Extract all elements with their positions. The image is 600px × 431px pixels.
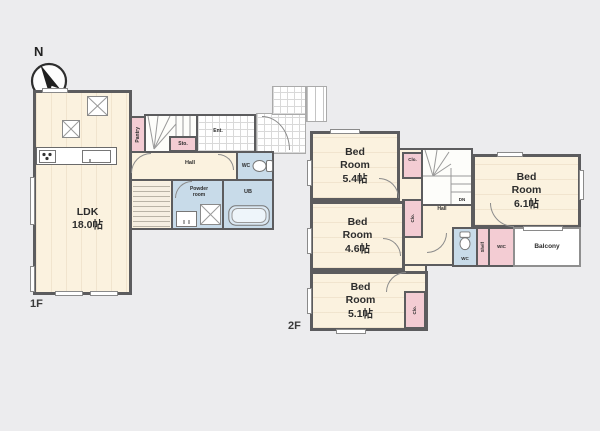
balcony: Balcony [513,227,581,267]
room-wic: WIC [488,227,515,267]
label-wc-2f: WC [456,256,474,262]
label-ldk: LDK 18.0帖 [45,206,130,232]
label-bedroom-54: Bed Room 5.4帖 [340,146,370,185]
bathtub-icon [228,205,270,226]
label-bedroom-61: Bed Room 6.1帖 [512,171,542,210]
label-wic: WIC [497,244,506,250]
closet-b: Clo. [402,199,423,238]
label-closet-a: Clo. [404,157,421,163]
label-balcony: Balcony [534,243,559,251]
room-ldk [33,90,132,295]
window [30,266,35,292]
stove-icon [39,150,56,163]
toilet-icon [457,231,473,251]
window [307,228,312,254]
label-unit-bath: UB [238,189,258,196]
window [55,291,83,296]
room-bedroom-46: Bed Room 4.6帖 [310,201,405,271]
washer-icon [200,204,221,225]
window [42,88,68,93]
window [90,291,118,296]
window [579,170,584,200]
window [523,226,563,231]
toilet-icon [254,155,271,177]
window [307,288,312,314]
label-storage: Sto. [178,141,187,147]
label-hall-1f: Hall [178,160,202,167]
label-hall-2f: Hall [430,206,454,212]
floor-plan: N LDK 18.0帖 Pantry [0,0,600,431]
room-bedroom-61: Bed Room 6.1帖 [472,154,581,228]
window [307,160,312,186]
window [336,329,366,334]
step-storage [133,182,170,227]
kitchen-sink-icon [82,150,111,163]
sink-icon [176,211,197,227]
label-closet-b: Clo. [410,214,416,223]
approach-steps [272,86,306,115]
approach-slope [306,86,327,122]
window [497,152,523,157]
room-storage: Sto. [169,136,197,152]
closet-c: Clo. [404,291,426,329]
hatch-box-icon [87,96,108,116]
label-pantry: Pantry [135,127,141,143]
label-bedroom-51: Bed Room 5.1帖 [346,281,376,320]
north-label: N [34,44,43,59]
label-down: DN [452,197,472,203]
hatch-box-icon [62,120,80,138]
closet-a: Clo. [402,152,423,179]
window [330,129,360,134]
floor2-label: 2F [288,320,301,332]
label-bedroom-46: Bed Room 4.6帖 [343,216,373,255]
label-entrance: Ent. [206,128,230,134]
label-shelf: Shelf [480,242,485,252]
floor1-label: 1F [30,298,43,310]
window [30,177,35,225]
label-closet-c: Clo. [412,306,418,315]
